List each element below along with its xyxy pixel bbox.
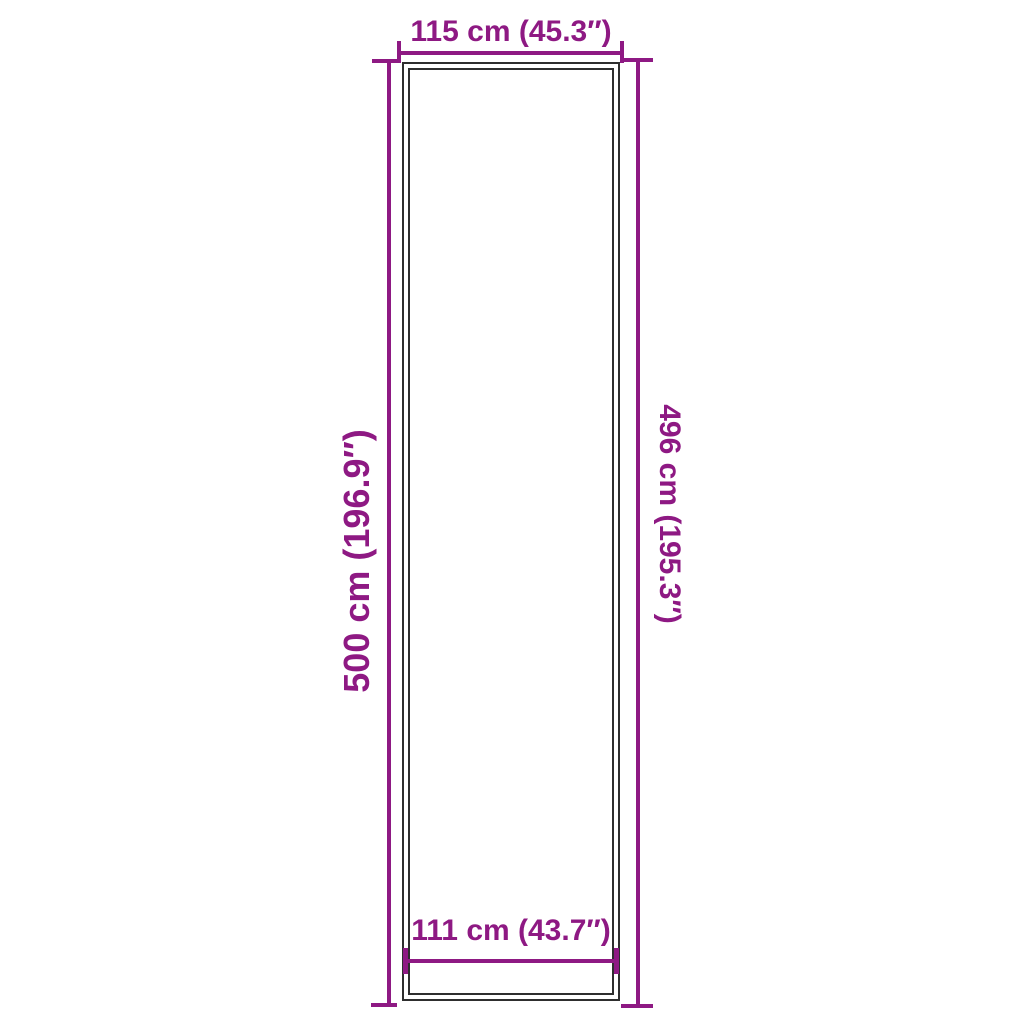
right-dimension-line — [636, 58, 640, 1008]
top-dimension-line — [397, 51, 624, 55]
product-outline-outer — [402, 62, 620, 1001]
right-dimension-end-tick-top — [621, 58, 653, 62]
bottom-dimension-line — [405, 959, 619, 963]
top-dimension-label: 115 cm (45.3″) — [398, 17, 624, 47]
dimension-diagram: 115 cm (45.3″) 500 cm (196.9″) 496 cm (1… — [0, 0, 1024, 1024]
left-dimension-line — [387, 59, 391, 1007]
left-dimension-end-tick-bottom — [371, 1003, 397, 1007]
product-outline-inner — [408, 68, 614, 995]
left-dimension-label: 500 cm (196.9″) — [339, 429, 375, 692]
right-dimension-end-tick-bottom — [621, 1004, 653, 1008]
right-dimension-label: 496 cm (195.3″) — [654, 404, 684, 624]
bottom-dimension-end-tick-right — [614, 948, 619, 974]
bottom-dimension-label: 111 cm (43.7″) — [402, 916, 620, 946]
left-dimension-end-tick-top — [372, 59, 398, 63]
bottom-dimension-end-tick-left — [403, 948, 408, 974]
